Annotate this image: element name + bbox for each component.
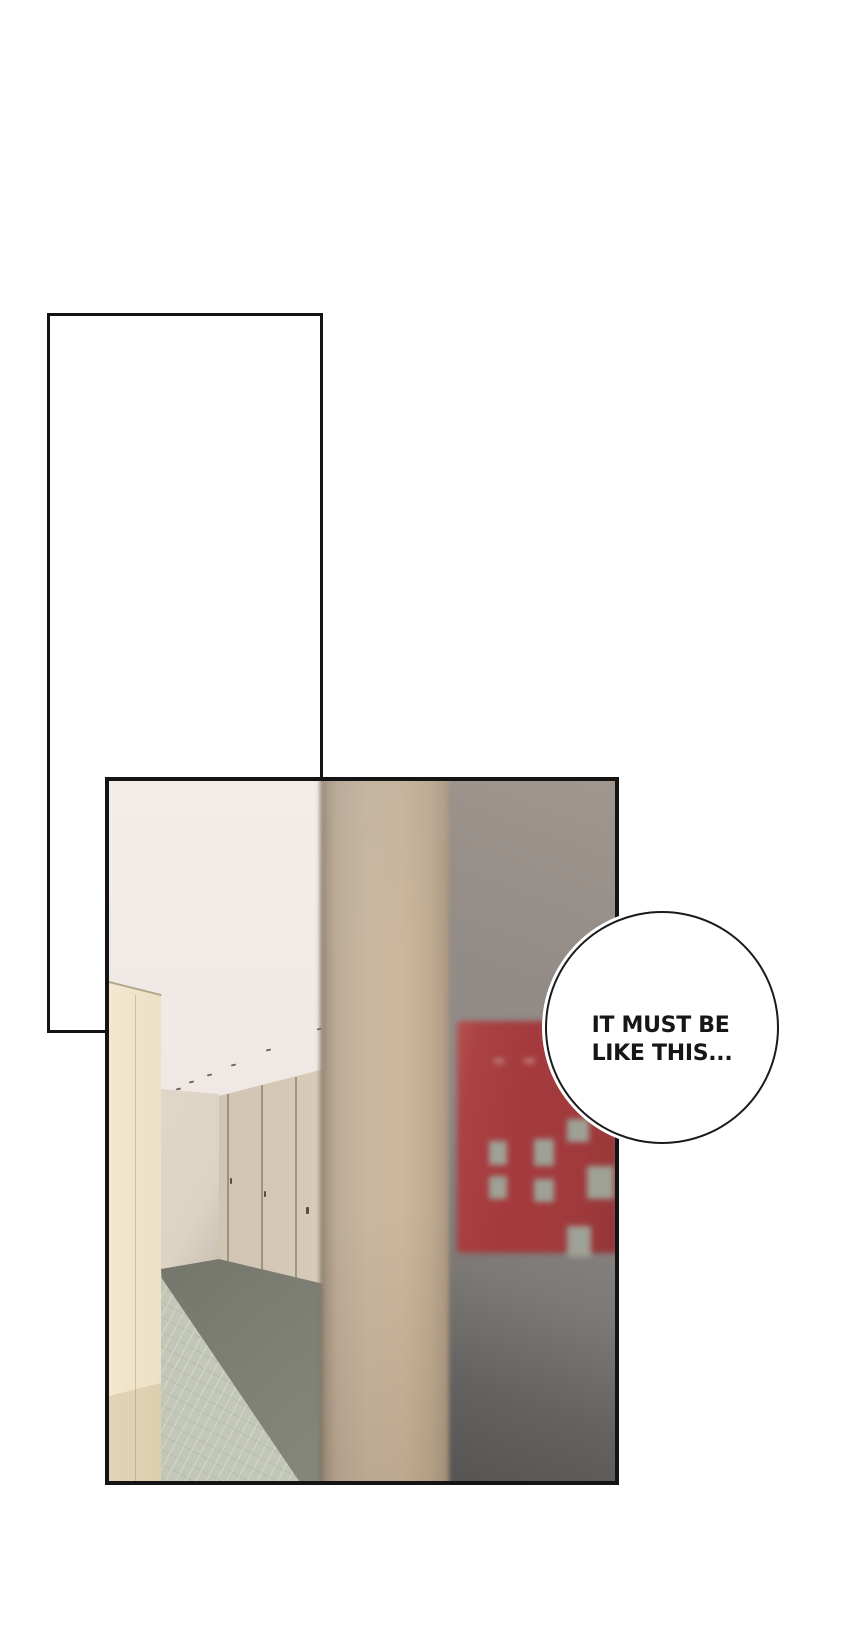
speech-line-1: IT MUST BE — [592, 1012, 733, 1040]
pinned-photo — [489, 1141, 507, 1165]
left-pillar-seam — [135, 995, 136, 1481]
pinboard-note — [524, 1059, 535, 1063]
speech-line-2: LIKE THIS... — [592, 1040, 733, 1068]
door-seam — [295, 1077, 297, 1279]
pinned-photo — [567, 1119, 589, 1142]
foreground-beam — [320, 777, 458, 1485]
pinned-photo — [567, 1226, 591, 1257]
pinned-photo — [534, 1179, 554, 1202]
door-handle — [230, 1178, 232, 1184]
comic-page: IT MUST BE LIKE THIS... — [0, 0, 850, 1632]
speech-bubble-text: IT MUST BE LIKE THIS... — [592, 1012, 733, 1068]
hallway-photo — [109, 781, 615, 1481]
door-seam — [227, 1094, 229, 1261]
door-handle — [264, 1191, 266, 1197]
door-seam — [261, 1085, 263, 1270]
speech-bubble: IT MUST BE LIKE THIS... — [545, 911, 779, 1144]
pinboard-note — [494, 1059, 504, 1063]
pinned-photo — [489, 1176, 507, 1199]
door-handle — [306, 1207, 309, 1214]
pinned-photo — [587, 1166, 614, 1199]
pinned-photo — [534, 1139, 554, 1166]
photo-panel — [105, 777, 619, 1485]
